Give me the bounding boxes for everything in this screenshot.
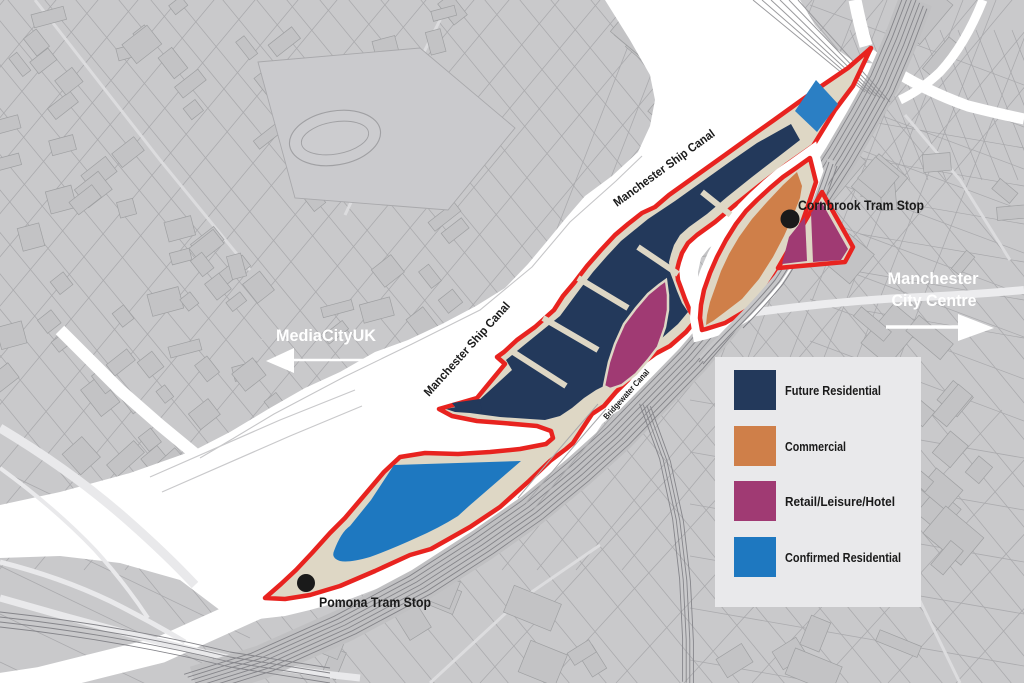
- svg-text:Pomona Tram Stop: Pomona Tram Stop: [319, 595, 431, 610]
- svg-text:City Centre: City Centre: [892, 291, 977, 310]
- svg-text:Confirmed Residential: Confirmed Residential: [785, 550, 901, 565]
- svg-text:Cornbrook Tram Stop: Cornbrook Tram Stop: [798, 198, 924, 213]
- svg-text:Commercial: Commercial: [785, 439, 846, 454]
- svg-text:Manchester: Manchester: [888, 269, 979, 288]
- svg-text:Retail/Leisure/Hotel: Retail/Leisure/Hotel: [785, 494, 895, 509]
- svg-text:Future Residential: Future Residential: [785, 383, 881, 398]
- svg-text:MediaCityUK: MediaCityUK: [276, 327, 376, 345]
